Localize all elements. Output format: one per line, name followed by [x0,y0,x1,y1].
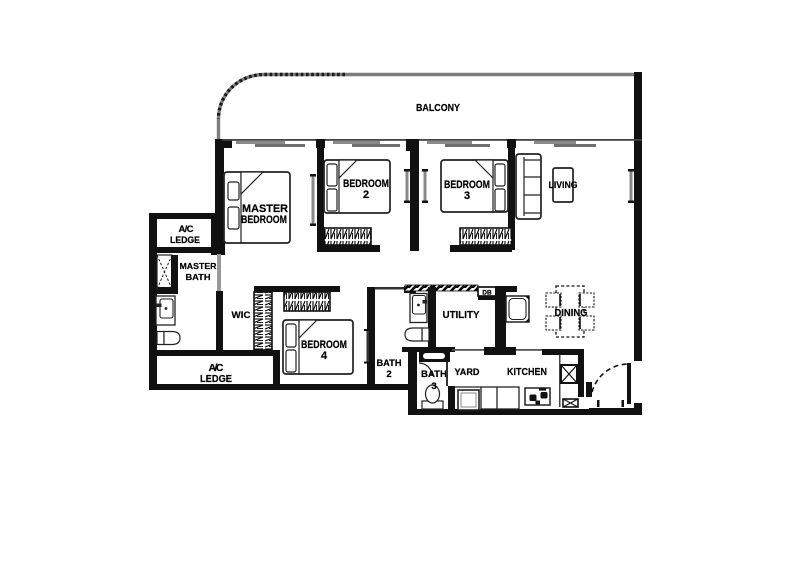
svg-text:BEDROOM: BEDROOM [241,214,287,226]
svg-text:DINING: DINING [555,308,588,319]
svg-text:KITCHEN: KITCHEN [507,367,547,378]
svg-text:DB: DB [482,290,492,297]
svg-text:3: 3 [431,381,436,392]
svg-text:WIC: WIC [232,310,251,321]
svg-text:2: 2 [386,369,391,380]
svg-text:BATH: BATH [377,358,402,369]
svg-text:4: 4 [321,350,328,362]
svg-text:LEDGE: LEDGE [200,373,232,385]
svg-text:2: 2 [363,189,369,201]
svg-text:BATH: BATH [186,272,211,282]
svg-text:MASTER: MASTER [180,261,217,271]
svg-text:BALCONY: BALCONY [416,102,460,114]
svg-text:3: 3 [464,190,470,202]
svg-text:LEDGE: LEDGE [170,235,200,246]
svg-text:YARD: YARD [455,367,480,378]
svg-text:LIVING: LIVING [549,180,578,191]
svg-text:UTILITY: UTILITY [443,310,480,321]
svg-text:A/C: A/C [179,224,194,235]
svg-text:BATH: BATH [421,369,447,380]
